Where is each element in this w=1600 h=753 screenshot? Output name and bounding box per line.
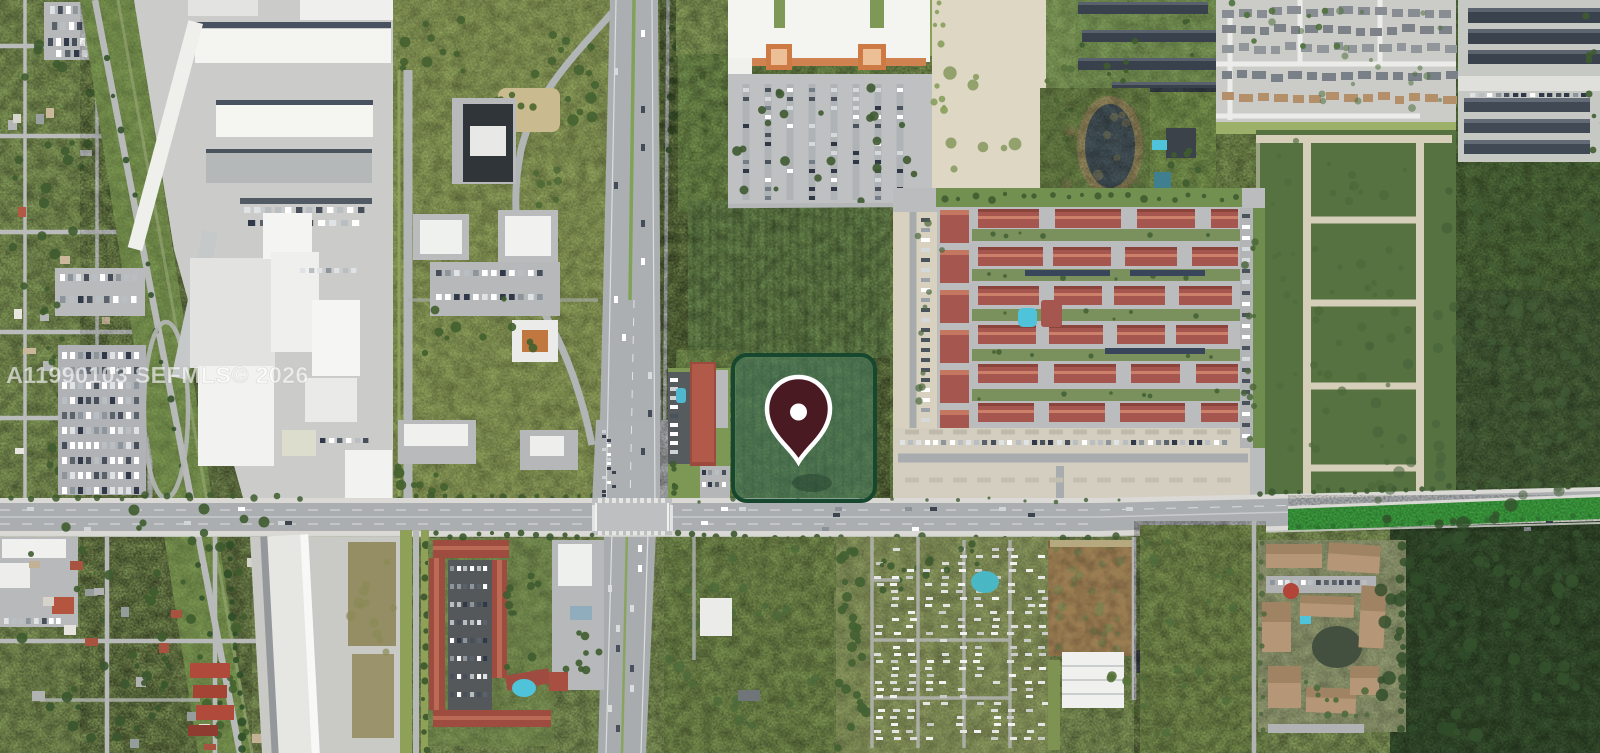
svg-text:A11990103 SEFMLS© 2026: A11990103 SEFMLS© 2026 <box>6 362 309 388</box>
